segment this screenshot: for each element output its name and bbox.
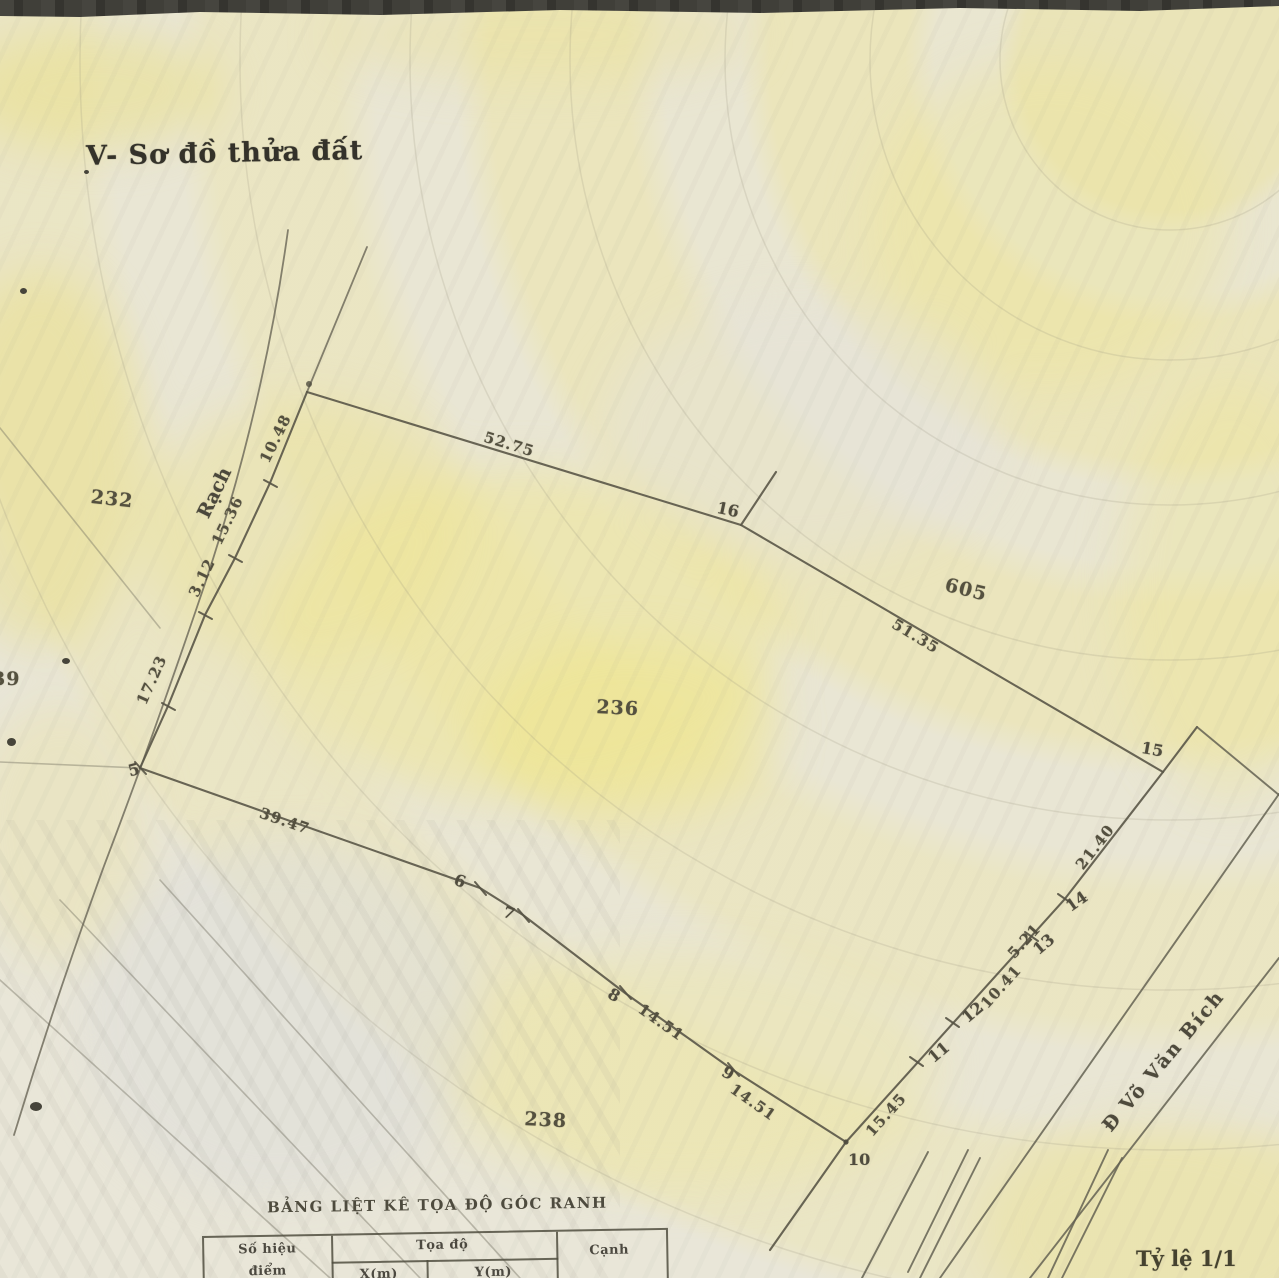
parcel-label-232: 232 [90, 486, 135, 512]
faint-neighbor-lines [0, 428, 520, 1278]
table-col-edge: Cạnh [589, 1243, 629, 1259]
vertex-10-dot [843, 1139, 848, 1144]
table-col-coordinates: Tọa độ [416, 1237, 468, 1253]
vertex-label-10: 10 [848, 1150, 870, 1169]
parcel-map-linework [0, 0, 1279, 1278]
coordinate-table: Số hiệu điểm Tọa độ X(m) Y(m) Cạnh [202, 1228, 669, 1278]
parcel-label-39: 39 [0, 668, 20, 690]
table-col-x: X(m) [360, 1267, 398, 1278]
junction-dot [306, 381, 312, 387]
scan-speck [30, 1102, 42, 1111]
scale-label: Tỷ lệ 1/1 [1136, 1246, 1237, 1271]
table-col-y: Y(m) [475, 1265, 513, 1278]
vertex-ticks [135, 480, 1071, 1076]
table-col-point-id-sub: điểm [248, 1264, 286, 1278]
parcel-label-238: 238 [524, 1108, 568, 1132]
table-col-point-id: Số hiệu [238, 1241, 296, 1257]
scan-speck [62, 658, 70, 664]
section-title: V- Sơ đồ thửa đất [86, 135, 364, 172]
scan-speck [7, 738, 16, 746]
canal-lines [14, 230, 367, 1135]
scan-speck [20, 288, 27, 294]
scan-speck [84, 170, 89, 174]
parcel-label-236: 236 [596, 696, 640, 720]
scanned-cadastral-document: V- Sơ đồ thửa đất 232 39 236 238 605 Rạc… [0, 0, 1279, 1278]
vertex-label-15: 15 [1140, 738, 1165, 761]
contour-arcs [0, 0, 1279, 1278]
